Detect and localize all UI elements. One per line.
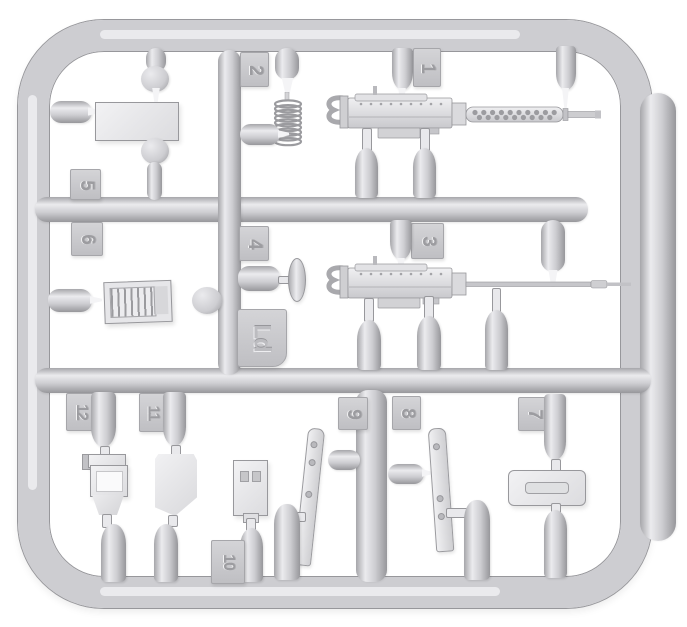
tab-label: 3 (416, 236, 438, 246)
ribbed-box-part-6 (103, 280, 172, 324)
arm-hole (436, 495, 443, 502)
lid-plate-part-7 (508, 470, 586, 506)
tab-label: 5 (74, 180, 96, 190)
sprue-gate-bottle (163, 392, 186, 446)
arm-hole (438, 513, 445, 520)
tab-label: 2 (243, 65, 265, 75)
sprue-code-label: Ld (248, 324, 276, 351)
part-number-tab-11: 11 (139, 393, 166, 432)
sprue-gate-bottle (485, 310, 508, 370)
lid-handle (525, 482, 569, 494)
sprue-gate-bottle (544, 394, 566, 460)
bracket-part-12 (82, 454, 130, 516)
bracket-base (92, 495, 124, 515)
sprue-gate-bottle (240, 124, 280, 145)
disc-part-4 (288, 258, 306, 302)
part-number-tab-5: 5 (70, 169, 101, 200)
sprue-gate-bottle (417, 316, 441, 370)
sprue-gate-bottle (544, 510, 567, 578)
arm-hole (305, 491, 313, 499)
sprue-gate-bottle (154, 524, 178, 582)
sprue-gate-stem (147, 162, 162, 200)
sprue-gate-bottle (355, 148, 378, 198)
bracket-body (90, 465, 128, 497)
part-number-tab-9: 9 (338, 397, 368, 430)
bracket-recess (96, 471, 123, 492)
flat-plate-part-5 (95, 102, 179, 141)
sprue-gate-ball (192, 287, 222, 314)
sprue-gate-stub (275, 48, 299, 80)
sprue-gate-bottle (328, 450, 360, 470)
arm-hole (308, 459, 316, 467)
sprue-gate-bottle (50, 101, 92, 123)
sprue-gate-bottle (238, 266, 280, 291)
part-number-tab-2: 2 (240, 52, 269, 87)
tab-label: 6 (76, 234, 98, 244)
box-ribs (109, 286, 156, 318)
sprue-gate-bottle (101, 524, 126, 582)
plate-part-10 (233, 460, 268, 516)
tab-label: 10 (219, 554, 237, 570)
sprue-gate-ball (141, 138, 169, 164)
sprue-gate-neck (364, 298, 374, 322)
sprue-gate-bottle (357, 320, 381, 370)
sprue-render: 5 6 2 1 (0, 0, 687, 627)
plate-slot (240, 471, 249, 482)
sprue-code-tab: Ld (237, 309, 287, 367)
part-number-tab-6: 6 (71, 222, 103, 256)
sprue-gate-bottle (48, 289, 92, 312)
frame-highlight-left (28, 95, 37, 490)
box-end-panel (153, 286, 168, 314)
frame-highlight-top (100, 30, 520, 39)
part-number-tab-1: 1 (413, 48, 441, 87)
sprue-gate-bottle (413, 148, 436, 198)
tab-label: 12 (71, 404, 89, 420)
tab-label: 7 (522, 409, 544, 419)
tab-label: 1 (416, 63, 438, 73)
sprue-gate-bottle (388, 464, 424, 484)
runner-horizontal-upper (35, 197, 588, 222)
tab-label: 8 (395, 408, 417, 418)
arm-hole (433, 443, 440, 450)
part-number-tab-10: 10 (211, 540, 245, 584)
plate-slot (252, 471, 261, 482)
part-number-tab-4: 4 (239, 226, 269, 261)
sprue-gate-post (464, 500, 490, 580)
tab-label: 4 (243, 239, 265, 249)
tab-label: 11 (143, 405, 161, 420)
part-number-tab-8: 8 (392, 396, 421, 430)
sprue-gate-post (274, 504, 300, 580)
tab-label: 9 (342, 409, 364, 419)
frame-right-rail (640, 93, 676, 541)
sprue-gate-bottle (91, 392, 116, 447)
frame-highlight-bottom (100, 587, 500, 596)
runner-horizontal-lower (35, 368, 651, 393)
arm-hole (310, 441, 318, 449)
